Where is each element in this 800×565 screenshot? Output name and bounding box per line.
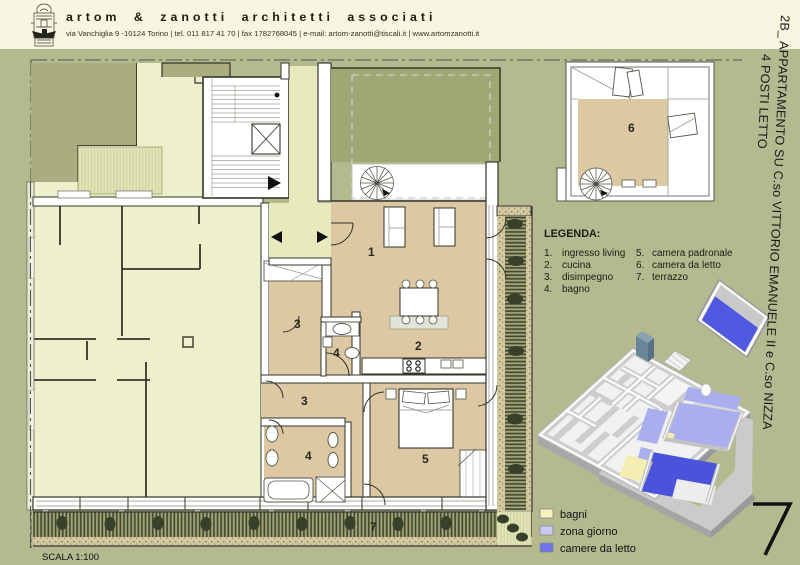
svg-text:5.: 5.	[636, 248, 644, 259]
svg-text:bagno: bagno	[562, 284, 590, 295]
svg-text:bagni: bagni	[560, 509, 587, 521]
svg-text:2.: 2.	[544, 260, 552, 271]
svg-text:2: 2	[415, 339, 422, 353]
svg-text:4: 4	[333, 346, 340, 360]
svg-text:cucina: cucina	[562, 260, 591, 271]
svg-text:zona giorno: zona giorno	[560, 526, 618, 538]
svg-text:via Vanchiglia 9 -10124 Torino: via Vanchiglia 9 -10124 Torino | tel. 01…	[66, 29, 480, 38]
svg-text:3.: 3.	[544, 272, 552, 283]
svg-text:LEGENDA:: LEGENDA:	[544, 228, 600, 240]
svg-text:4: 4	[305, 449, 312, 463]
svg-text:terrazzo: terrazzo	[652, 272, 689, 283]
svg-text:5: 5	[422, 452, 429, 466]
svg-text:6: 6	[628, 121, 635, 135]
svg-text:disimpegno: disimpegno	[562, 272, 614, 283]
svg-text:1: 1	[368, 245, 375, 259]
svg-text:ingresso living: ingresso living	[562, 248, 625, 259]
svg-text:4.: 4.	[544, 284, 552, 295]
svg-text:3: 3	[294, 317, 301, 331]
svg-text:6.: 6.	[636, 260, 644, 271]
svg-text:1.: 1.	[544, 248, 552, 259]
svg-text:7.: 7.	[636, 272, 644, 283]
svg-text:camera padronale: camera padronale	[652, 248, 733, 259]
svg-text:3: 3	[301, 394, 308, 408]
svg-text:SCALA 1:100: SCALA 1:100	[42, 552, 99, 563]
svg-text:artom & zanotti architetti a: artom & zanotti architetti associati	[66, 10, 436, 24]
svg-text:7: 7	[370, 520, 377, 534]
svg-text:camere da letto: camere da letto	[560, 543, 636, 555]
svg-text:camera da letto: camera da letto	[652, 260, 721, 271]
